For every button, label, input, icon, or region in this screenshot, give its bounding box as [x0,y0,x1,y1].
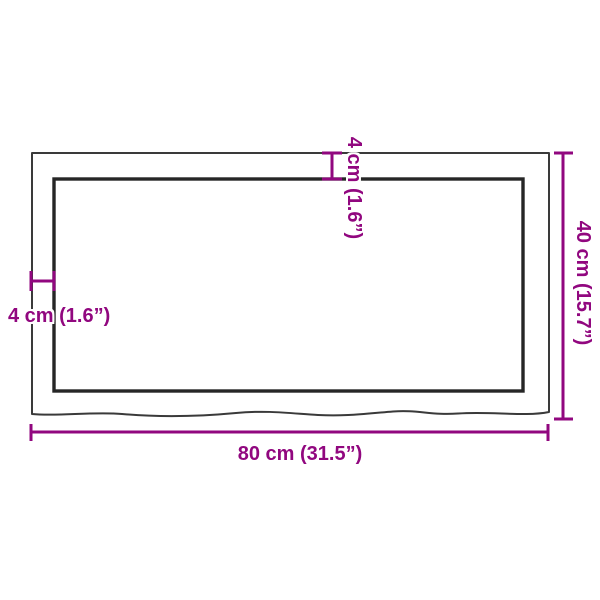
tabletop-outer-outline [32,153,549,416]
tabletop-inner-outline [54,179,523,391]
dimension-line-thickness-left [31,271,54,291]
width-bottom-label: 80 cm (31.5”) [0,444,600,464]
height-right-label: 40 cm (15.7”) [573,221,593,346]
dimension-diagram: 4 cm (1.6”) 4 cm (1.6”) 40 cm (15.7”) 80… [0,0,600,600]
diagram-canvas [0,0,600,600]
dimension-line-thickness-top [322,153,342,179]
dimension-line-width-bottom [31,424,548,441]
thickness-top-label: 4 cm (1.6”) [344,137,364,239]
dimension-line-height-right [554,153,573,419]
thickness-left-label: 4 cm (1.6”) [8,306,110,326]
